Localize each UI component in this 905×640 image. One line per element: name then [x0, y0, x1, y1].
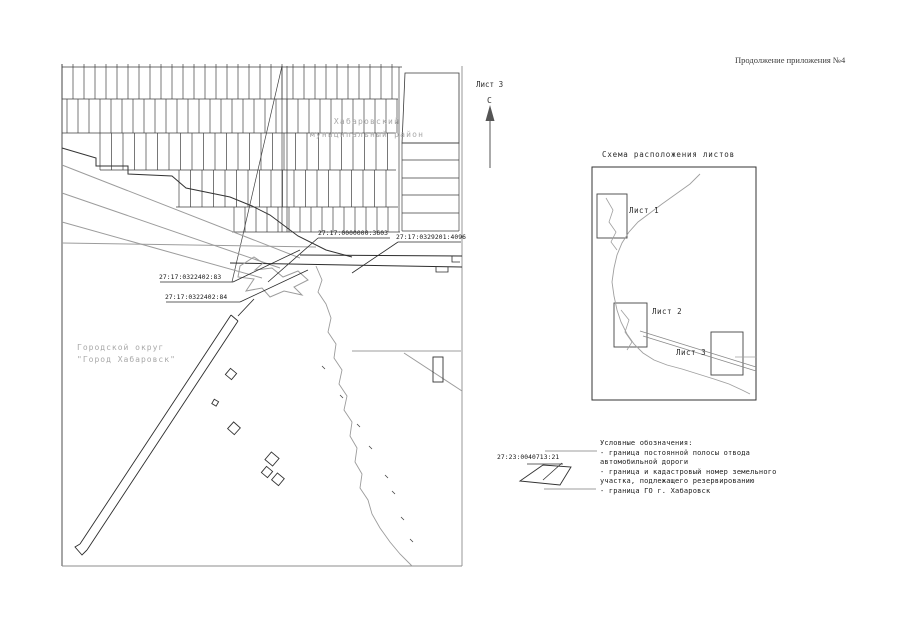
sheet-label: Лист 3: [476, 80, 503, 89]
north-arrow-icon: [486, 105, 495, 168]
legend-item-right-of-way: - граница постоянной полосы отвода автом…: [600, 449, 784, 468]
scheme-sheet-3: Лист 3: [676, 348, 706, 357]
parcel-number-84: 27:17:0322402:84: [165, 294, 227, 301]
stream: [316, 266, 412, 566]
road-corridor-east: [230, 255, 462, 272]
legend-title: Условные обозначения:: [600, 439, 784, 449]
city-label: Городской округ "Город Хабаровск": [77, 342, 176, 366]
scheme-sheet-1: Лист 1: [629, 206, 659, 215]
scheme-sheet-2: Лист 2: [652, 307, 682, 316]
tick-marks: [322, 366, 413, 542]
district-label-line1: Хабаровский: [292, 115, 442, 128]
stepped-boundary: [62, 148, 352, 257]
road-corridor-southwest: [75, 299, 254, 555]
cadastral-parcel-grid: [62, 64, 459, 282]
map-canvas: [0, 0, 905, 640]
label-leaders: [160, 238, 461, 302]
parcel-number-3603: 27:17:0000000:3603: [318, 230, 388, 237]
city-label-line2: "Город Хабаровск": [77, 354, 176, 366]
district-label-line2: муниципальный район: [292, 128, 442, 141]
parcel-number-4096: 27:17:0329201:4096: [396, 234, 466, 241]
legend: Условные обозначения: - граница постоянн…: [600, 439, 784, 497]
city-label-line1: Городской округ: [77, 342, 176, 354]
north-label: С: [487, 96, 492, 105]
legend-item-city-boundary: - граница ГО г. Хабаровск: [600, 487, 784, 497]
scheme-title: Схема расположения листов: [602, 150, 735, 159]
small-parcels: [212, 357, 443, 486]
continuation-note: Продолжение приложения №4: [735, 55, 845, 65]
legend-item-reserved-parcel: - граница и кадастровый номер земельного…: [600, 468, 784, 487]
parcel-number-83: 27:17:0322402:83: [159, 274, 221, 281]
sheet-scheme: [592, 167, 757, 400]
legend-parcel-number: 27:23:0040713:21: [497, 454, 559, 461]
document-page: Продолжение приложения №4 Лист 3 С Хабар…: [0, 0, 905, 640]
district-label: Хабаровский муниципальный район: [292, 115, 442, 141]
